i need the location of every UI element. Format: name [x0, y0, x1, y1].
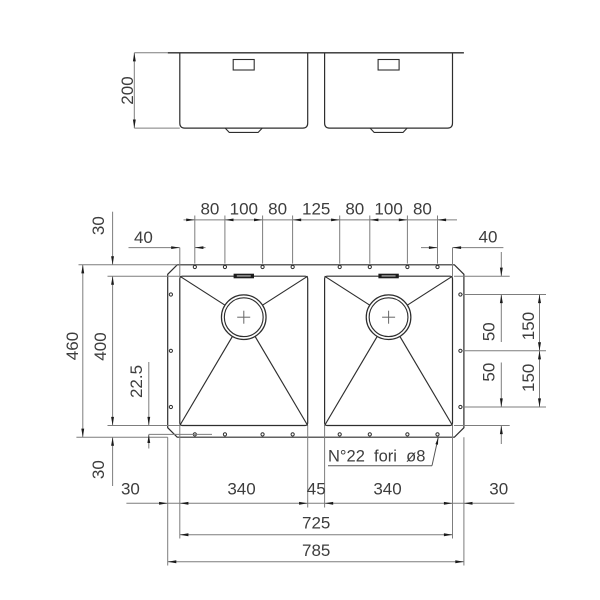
- svg-text:150: 150: [519, 312, 538, 340]
- svg-text:N°22 fori ø8: N°22 fori ø8: [328, 448, 425, 466]
- svg-text:785: 785: [302, 541, 330, 560]
- svg-text:40: 40: [479, 227, 498, 246]
- svg-text:30: 30: [489, 480, 508, 499]
- svg-text:80: 80: [200, 199, 219, 218]
- svg-text:340: 340: [227, 480, 255, 499]
- svg-text:22.5: 22.5: [127, 365, 146, 398]
- svg-text:50: 50: [479, 322, 498, 341]
- svg-text:725: 725: [302, 514, 330, 533]
- svg-text:125: 125: [302, 199, 330, 218]
- svg-text:80: 80: [413, 199, 432, 218]
- svg-text:460: 460: [63, 332, 82, 360]
- svg-text:30: 30: [121, 480, 140, 499]
- svg-text:40: 40: [134, 228, 153, 247]
- svg-text:45: 45: [307, 480, 326, 499]
- svg-text:150: 150: [519, 364, 538, 392]
- svg-text:400: 400: [91, 332, 110, 360]
- svg-text:80: 80: [345, 199, 364, 218]
- svg-text:100: 100: [374, 199, 402, 218]
- svg-text:100: 100: [230, 199, 258, 218]
- svg-text:200: 200: [118, 76, 137, 104]
- svg-text:50: 50: [479, 363, 498, 382]
- svg-text:30: 30: [89, 216, 108, 235]
- svg-text:30: 30: [89, 460, 108, 479]
- svg-text:340: 340: [373, 480, 401, 499]
- svg-text:80: 80: [268, 199, 287, 218]
